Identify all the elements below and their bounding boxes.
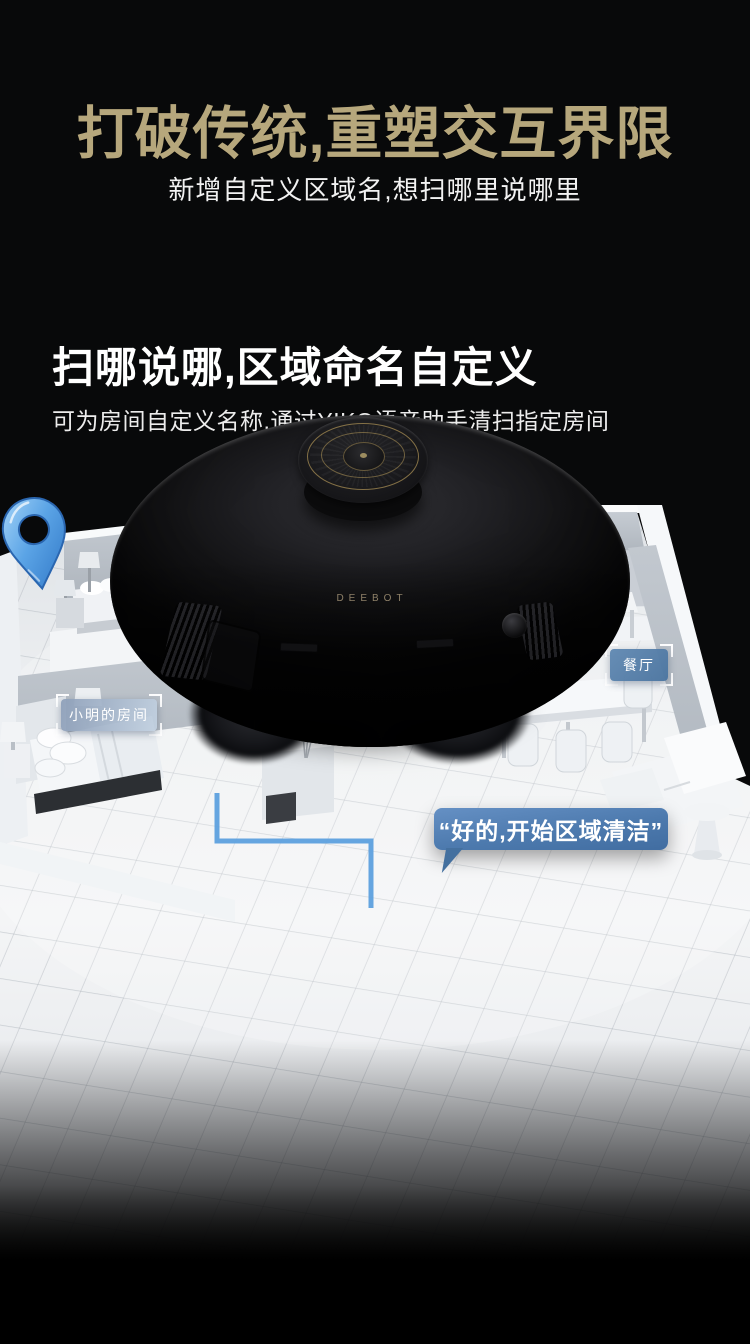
robot-vacuum: DEEBOT — [108, 405, 632, 825]
robot-seam-left — [280, 642, 318, 652]
robot-lidar-turret — [298, 417, 428, 503]
lidar-center-dot — [360, 453, 367, 458]
hero-subtitle: 新增自定义区域名,想扫哪里说哪里 — [0, 170, 750, 207]
feature-heading: 扫哪说哪,区域命名自定义 — [52, 334, 538, 395]
robot-bumper-panel — [200, 619, 261, 694]
location-pin-icon — [0, 495, 70, 595]
robot-camera-icon — [502, 613, 527, 638]
robot-brand-label: DEEBOT — [312, 593, 432, 604]
hero-title: 打破传统,重塑交互界限 — [0, 88, 750, 170]
